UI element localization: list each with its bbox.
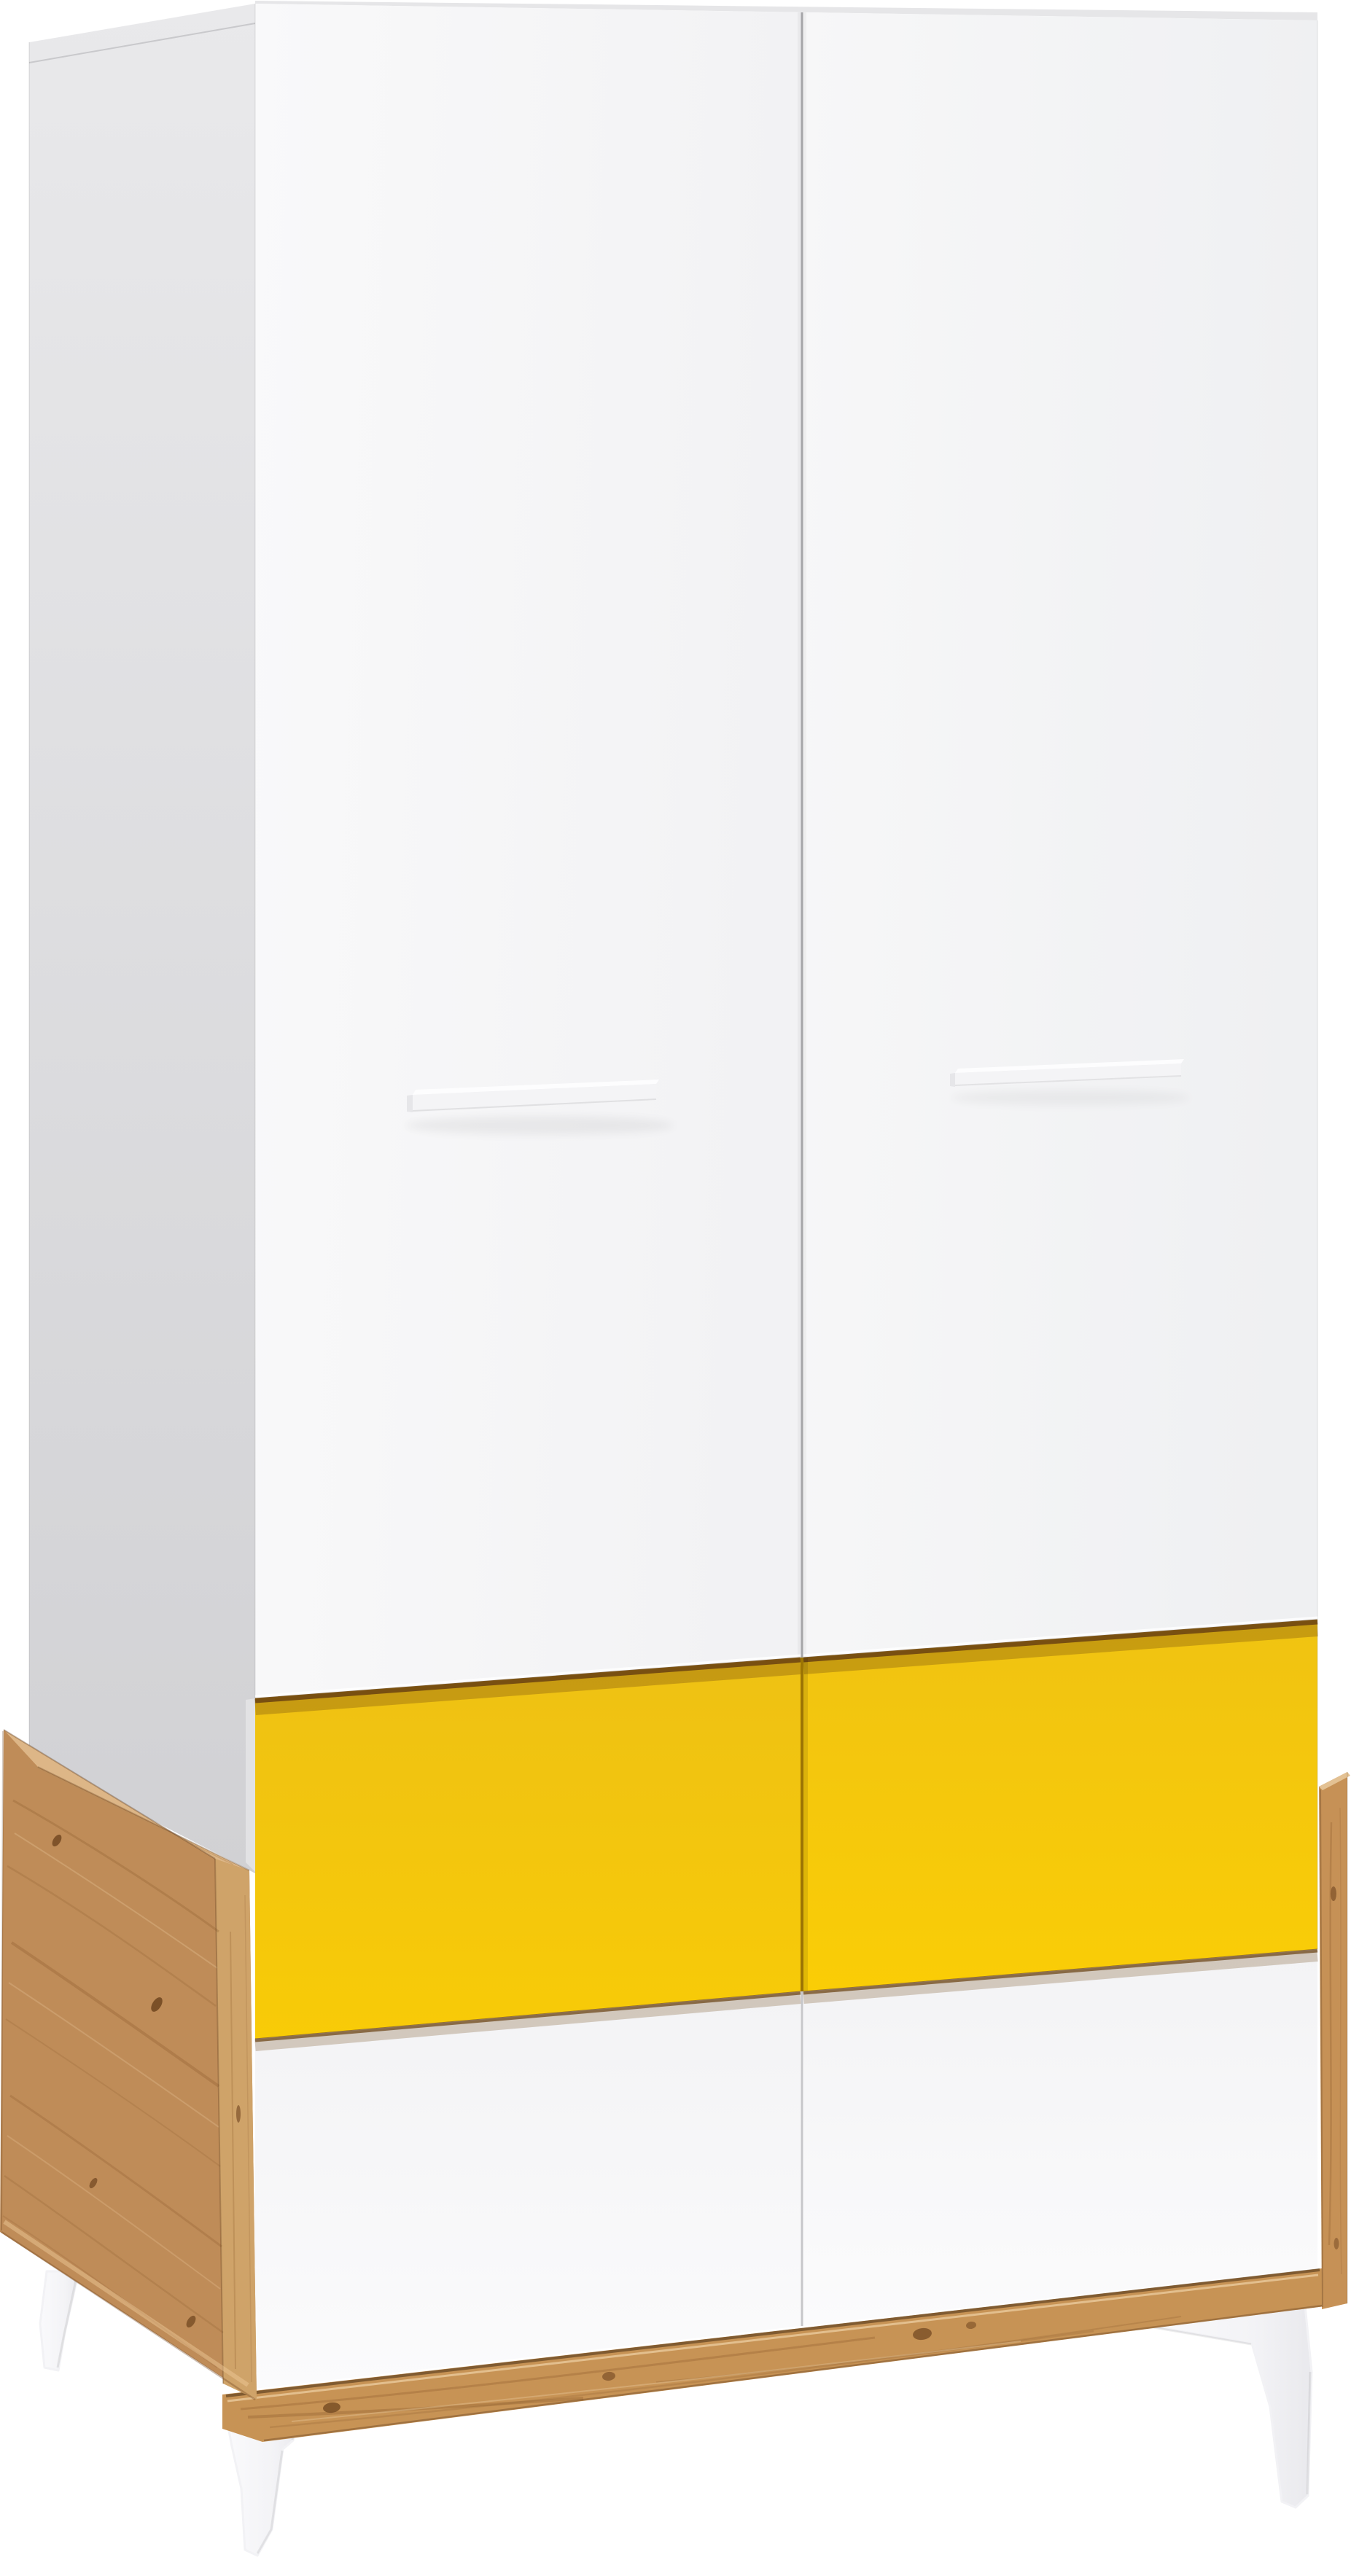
- side-panel-face: [29, 4, 255, 1873]
- white-drawer-left[interactable]: [255, 1991, 801, 2389]
- yellow-drawer-right[interactable]: [803, 1620, 1317, 1991]
- left-door[interactable]: [255, 4, 802, 1698]
- wardrobe-doors: [255, 4, 1317, 1698]
- wardrobe-side-panel: [29, 4, 255, 1873]
- left-handle-shadow: [405, 1116, 674, 1135]
- yellow-drawer-left[interactable]: [255, 1658, 801, 2039]
- right-handle-end-cap: [950, 1073, 955, 1087]
- right-handle-shadow: [950, 1090, 1191, 1106]
- left-handle-end-cap: [407, 1095, 413, 1112]
- white-drawer-right[interactable]: [803, 1949, 1317, 2326]
- product-photo-wardrobe: [0, 0, 1351, 2576]
- side-panel-front-edge: [246, 1698, 255, 1872]
- oak-base-right-edge: [1319, 1772, 1350, 2309]
- right-door[interactable]: [802, 12, 1317, 1658]
- right-edge-face: [1319, 1772, 1347, 2309]
